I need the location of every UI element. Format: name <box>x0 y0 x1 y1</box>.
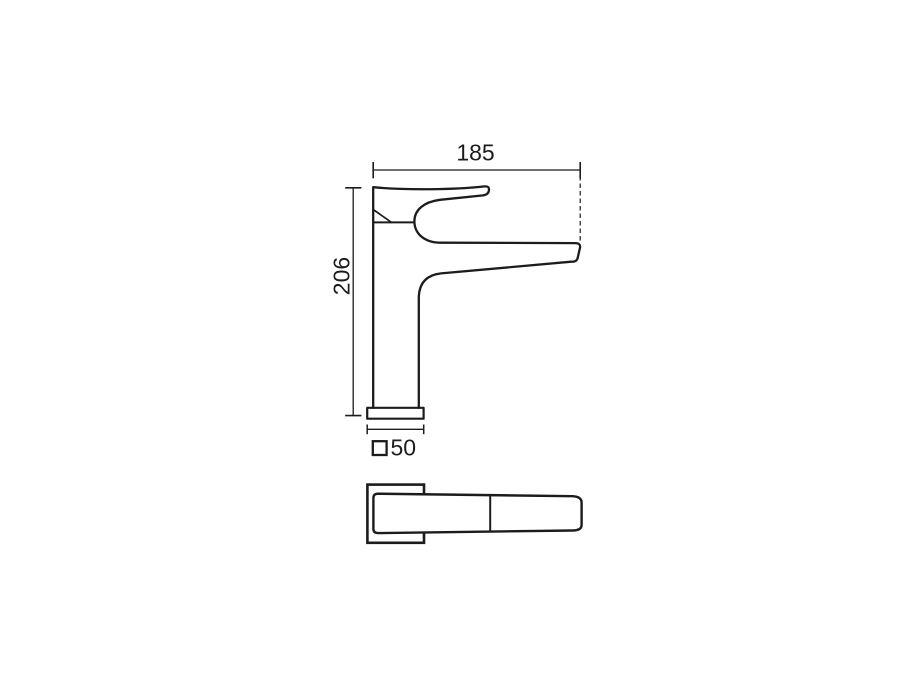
lever-pivot-line <box>373 210 391 223</box>
faucet-side-view <box>367 186 580 418</box>
faucet-body-outline <box>373 186 580 407</box>
technical-drawing-canvas: 185 206 50 <box>0 0 900 679</box>
width-dimension-label: 185 <box>456 140 494 166</box>
base-dimension-label: 50 <box>391 435 417 461</box>
faucet-body-top-view <box>373 494 581 533</box>
height-dimension-label: 206 <box>329 257 355 295</box>
faucet-top-view <box>367 485 581 543</box>
faucet-base-plate <box>367 408 423 419</box>
base-dimension: 50 <box>367 425 424 461</box>
square-section-icon <box>373 441 387 455</box>
width-dimension: 185 <box>373 140 580 242</box>
height-dimension: 206 <box>329 188 362 416</box>
faucet-dimension-drawing: 185 206 50 <box>0 0 900 679</box>
